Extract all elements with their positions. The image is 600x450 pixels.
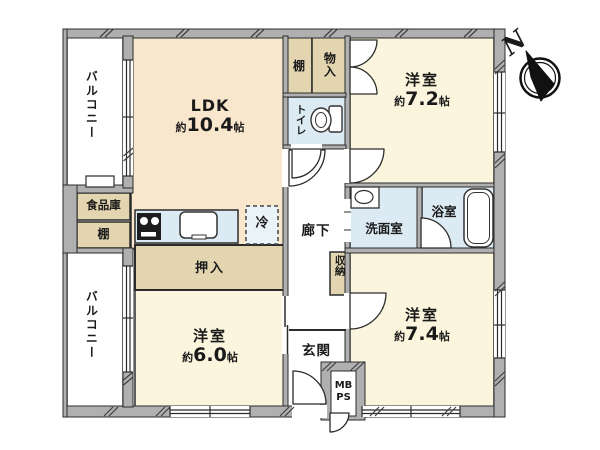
window-bottom-room60	[170, 406, 250, 417]
bathroom-label: 浴室	[420, 204, 468, 219]
toilet-icon	[311, 106, 342, 132]
pantry-label: 食品庫	[77, 199, 130, 213]
toilet-label: トイレ	[294, 104, 307, 136]
refrigerator-label: 冷	[246, 216, 278, 232]
western-room-74-area: 約7.4帖	[351, 323, 493, 346]
shelf-top-label: 棚	[286, 59, 312, 73]
opening-ldk-door	[282, 149, 289, 187]
stove-icon	[137, 213, 161, 240]
ldk-area: 約10.4帖	[136, 114, 284, 137]
western-room-72-label: 洋室 約7.2帖	[351, 71, 493, 111]
bathtub-icon	[464, 189, 493, 247]
closet-top-label: 物入	[322, 52, 336, 78]
window-right-upper	[494, 72, 505, 152]
window-balcony-bottom	[123, 266, 133, 372]
wall-midleft-left	[63, 185, 77, 253]
north-compass	[521, 51, 560, 101]
hall-storage-label: 収納	[333, 255, 346, 276]
window-balcony-top	[123, 60, 133, 176]
wall-sanitary-bottom	[345, 248, 494, 253]
entrance-label: 玄関	[289, 343, 344, 359]
meter-box-label: MBPS	[330, 380, 357, 403]
western-room-72-area: 約7.2帖	[351, 88, 493, 111]
opening-front-door	[292, 405, 327, 418]
western-room-60-name: 洋室	[136, 327, 284, 345]
ldk-name: LDK	[136, 96, 284, 115]
western-room-60-label: 洋室 約6.0帖	[136, 327, 284, 367]
kitchen-sink-icon	[180, 212, 217, 239]
floor-plan: バルコニー バルコニー LDK 約10.4帖 洋室 約7.2帖 洋室 約7.4帖…	[0, 0, 600, 450]
window-right-lower	[494, 290, 505, 358]
wall-closet-bottom	[283, 93, 346, 97]
washroom-label: 洗面室	[350, 221, 418, 236]
meter-box-door	[330, 413, 349, 432]
western-room-74-name: 洋室	[351, 306, 493, 324]
oshiire-label: 押入	[140, 261, 280, 277]
hallway-label: 廊下	[286, 223, 346, 239]
western-room-74-label: 洋室 約7.4帖	[351, 306, 493, 346]
western-room-60-area: 約6.0帖	[136, 344, 284, 367]
western-room-72-name: 洋室	[351, 71, 493, 89]
window-bottom-room74	[362, 406, 460, 417]
balcony-top-label: バルコニー	[84, 70, 98, 140]
shelf-left-label: 棚	[77, 227, 130, 241]
balcony-step	[86, 176, 114, 187]
balcony-bottom-label: バルコニー	[84, 290, 98, 360]
ldk-label: LDK 約10.4帖	[136, 96, 284, 137]
washbasin-icon	[351, 187, 379, 208]
